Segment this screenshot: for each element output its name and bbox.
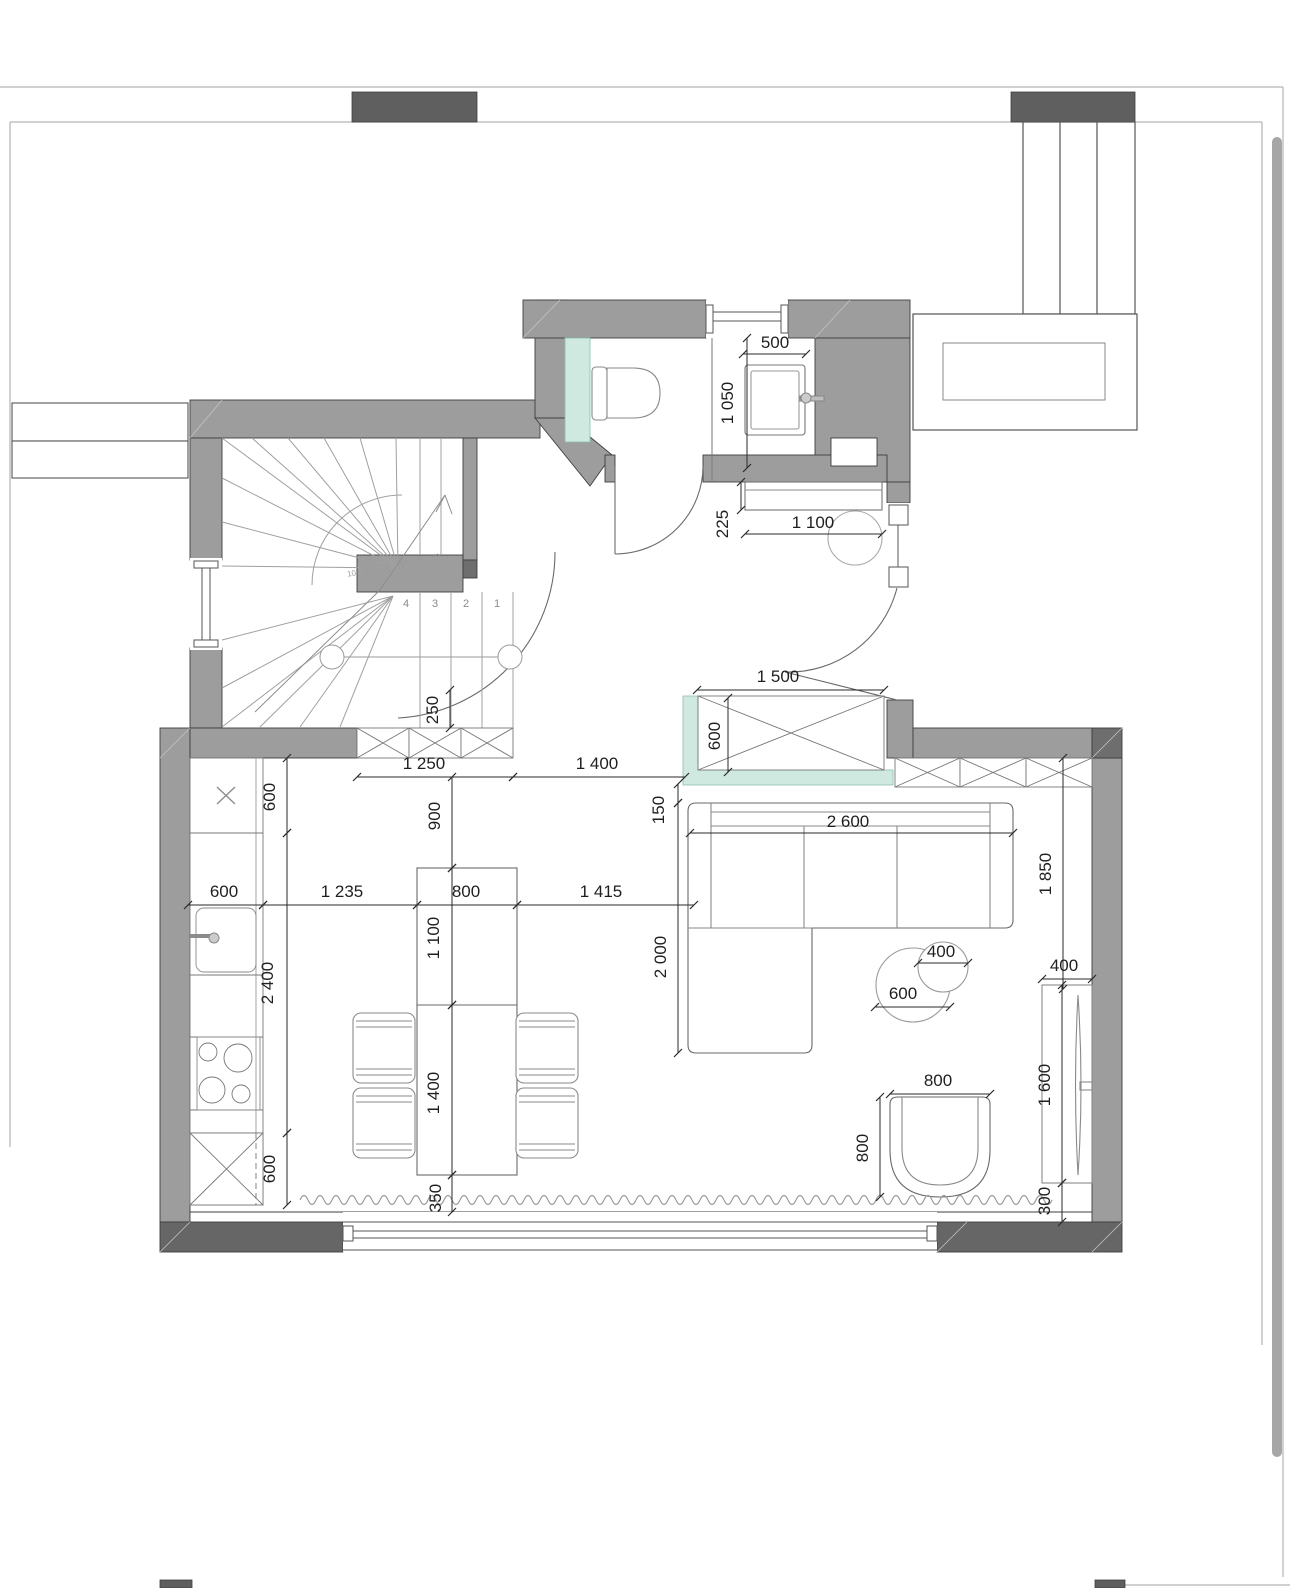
shower-panel (565, 338, 590, 442)
armchair (890, 1097, 990, 1197)
porch-mat (943, 343, 1105, 400)
dimension-label: 150 (649, 796, 668, 824)
dimension-label: 1 850 (1036, 853, 1055, 896)
toilet (592, 367, 660, 420)
section-marker-top-left (352, 92, 477, 122)
dimension-label: 225 (713, 510, 732, 538)
dimension-label: 250 (423, 696, 442, 724)
wardrobe (698, 696, 884, 770)
dimension-label: 600 (260, 1155, 279, 1183)
stair-step-number: 10 (346, 568, 357, 579)
dimension-label: 2 400 (258, 962, 277, 1005)
dimension-label: 350 (426, 1184, 445, 1212)
kitchen-base-cabinet (190, 1133, 263, 1205)
dimension-label: 2 000 (651, 936, 670, 979)
floor-plan-drawing: 5001 0502251 1001 5006002501 2501 400900… (0, 0, 1290, 1588)
dimension-label: 600 (705, 722, 724, 750)
stair-step-number: 4 (403, 598, 409, 610)
dimension-label: 2 600 (827, 812, 870, 831)
chair-bottom-left (353, 1088, 415, 1158)
dimension-label: 800 (924, 1071, 952, 1090)
window-hall-right (885, 503, 912, 587)
bath-sink (745, 365, 824, 435)
dimension-label: 600 (260, 783, 279, 811)
chair-bottom-right (516, 1088, 578, 1158)
wall-living-top (913, 728, 1092, 758)
dining-table (417, 868, 517, 1175)
wall-bath-top-left (523, 300, 706, 338)
dimension-label: 1 600 (1035, 1064, 1054, 1107)
window-living-main (343, 1212, 937, 1252)
dimension-label: 1 400 (576, 754, 619, 773)
dimension-label: 1 400 (424, 1072, 443, 1115)
wall-stair-right (463, 438, 477, 560)
exterior-stair (1023, 122, 1135, 314)
dimension-label: 1 100 (792, 513, 835, 532)
stair-treads-upper-flight (420, 438, 441, 555)
dimension-label: 800 (853, 1134, 872, 1162)
door-jamb-stair (463, 560, 477, 578)
wall-kitchen-left (160, 728, 190, 1222)
wall-stair-spine (357, 555, 463, 592)
window-stair-left (190, 558, 222, 650)
wall-stair-bottom (190, 728, 357, 758)
hall-mirror (828, 511, 882, 565)
wall-stair-left-upper (190, 438, 222, 560)
entry-canopy (12, 403, 188, 478)
stair-column-left (320, 645, 344, 669)
hall-bench (745, 482, 882, 510)
wall-hall-right-sill (887, 482, 910, 503)
dimension-label: 800 (452, 882, 480, 901)
dimension-label: 1 415 (580, 882, 623, 901)
stair-winder-fan-lower (222, 596, 393, 727)
bath-niche (831, 438, 877, 466)
wall-bottom-left (160, 1222, 343, 1252)
wall-cabinets-living (895, 758, 1092, 787)
kitchen (190, 758, 263, 1205)
wall-stair-left-lower (190, 648, 222, 728)
dimension-label: 900 (425, 802, 444, 830)
stair-column-right (498, 645, 522, 669)
dimension-label: 1 050 (718, 382, 737, 425)
stair-step-number: 3 (432, 598, 438, 610)
wall-hall-right-pier (887, 700, 913, 758)
dimension-label: 1 250 (403, 754, 446, 773)
dimension-label: 1 235 (321, 882, 364, 901)
chair-top-left (353, 1013, 415, 1083)
wall-living-right (1092, 758, 1122, 1222)
dimension-label: 300 (1035, 1187, 1054, 1215)
wall-stair-top (190, 400, 540, 438)
stair-winder-fan-upper (222, 438, 398, 568)
section-marker-top-right (1011, 92, 1135, 122)
stair-step-number: 15 (432, 552, 442, 562)
dimension-label: 500 (761, 333, 789, 352)
scrollbar-thumb[interactable] (1272, 137, 1282, 1457)
stair-landing-edge (320, 645, 522, 669)
dimension-label: 400 (927, 942, 955, 961)
section-marker-bottom-right (1095, 1580, 1125, 1588)
section-marker-bottom-left (160, 1580, 192, 1588)
wall-bottom-right (937, 1222, 1122, 1252)
floor-plan-page: 5001 0502251 1001 5006002501 2501 400900… (0, 0, 1290, 1588)
dimension-label: 400 (1050, 956, 1078, 975)
wall-bath-top-right (788, 300, 910, 338)
dimension-label: 1 500 (757, 667, 800, 686)
dining-set (353, 868, 578, 1175)
chair-top-right (516, 1013, 578, 1083)
dimension-label: 600 (889, 984, 917, 1003)
dimension-label: 1 100 (424, 917, 443, 960)
door-bathroom (615, 466, 703, 554)
stair-step-number: 1 (494, 598, 500, 610)
door-entry (785, 588, 897, 700)
porch (913, 314, 1137, 430)
stair-step-number: 2 (463, 598, 469, 610)
wall-bath-bottom-left (605, 455, 615, 482)
dimension-label: 600 (210, 882, 238, 901)
